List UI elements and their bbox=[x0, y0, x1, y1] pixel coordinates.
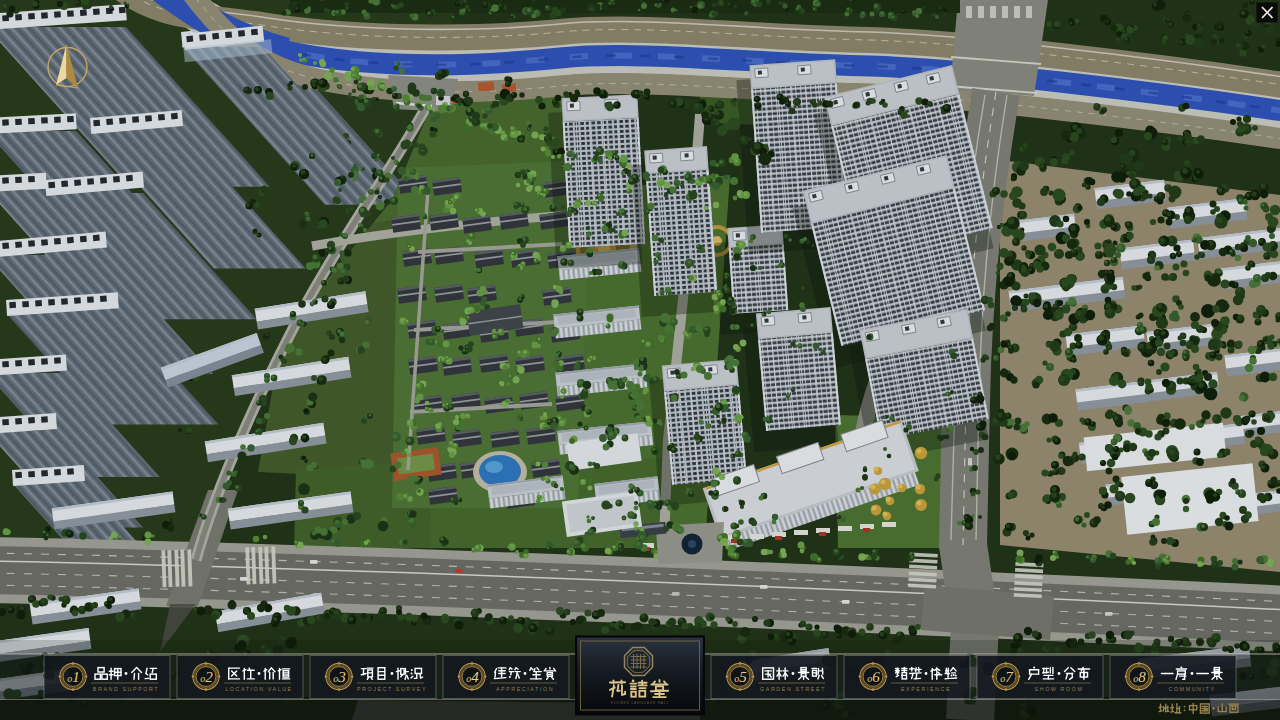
svg-text:LOCATION VALUE: LOCATION VALUE bbox=[225, 686, 293, 692]
svg-text:SHOW ROOM: SHOW ROOM bbox=[1035, 686, 1084, 692]
svg-text:EXPERIENCE: EXPERIENCE bbox=[901, 686, 951, 692]
svg-text:PROJECT SURVEY: PROJECT SURVEY bbox=[357, 686, 427, 692]
svg-text:GARDEN STREET: GARDEN STREET bbox=[760, 686, 826, 692]
svg-text:COMMUNITY: COMMUNITY bbox=[1168, 686, 1215, 692]
svg-text:FLOWER LANGUAGE HALL: FLOWER LANGUAGE HALL bbox=[611, 701, 669, 705]
svg-text:BRAND SUPPORT: BRAND SUPPORT bbox=[93, 686, 159, 692]
svg-text:APPRECIATION: APPRECIATION bbox=[496, 686, 554, 692]
